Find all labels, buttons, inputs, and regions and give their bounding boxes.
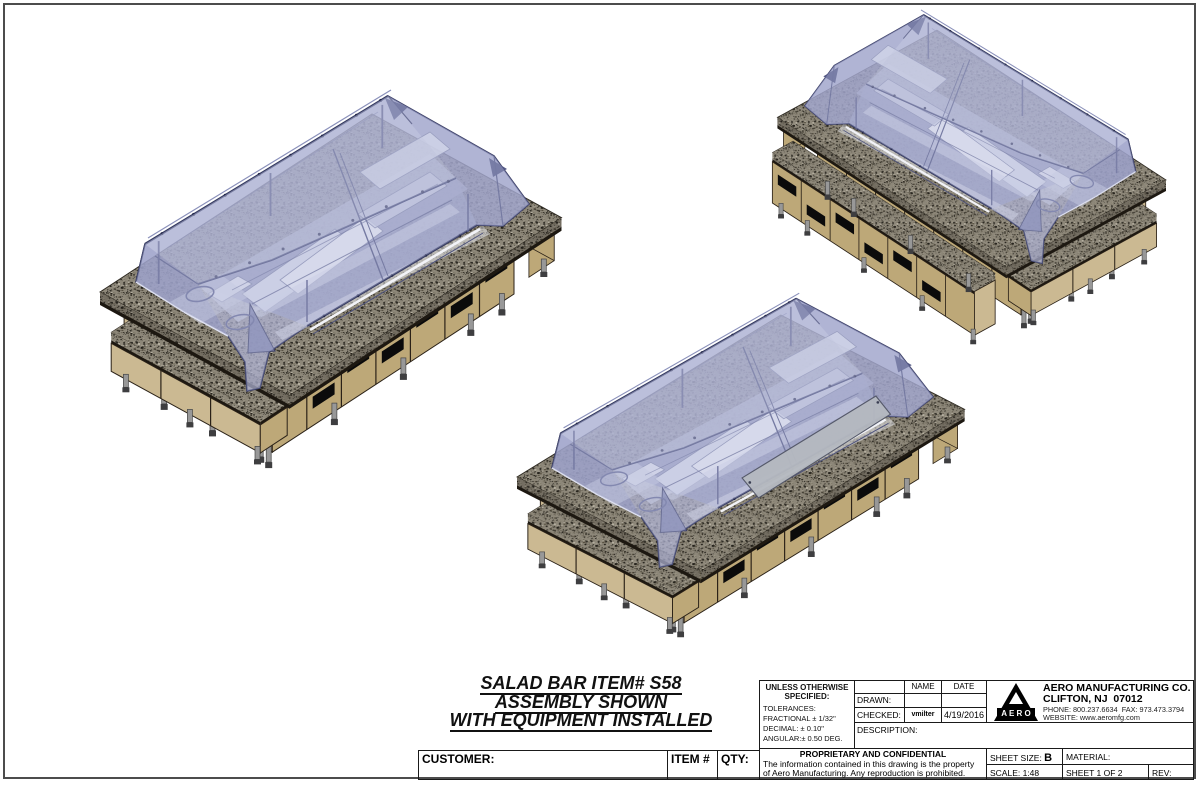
svg-text:A E R O: A E R O <box>1001 709 1030 718</box>
